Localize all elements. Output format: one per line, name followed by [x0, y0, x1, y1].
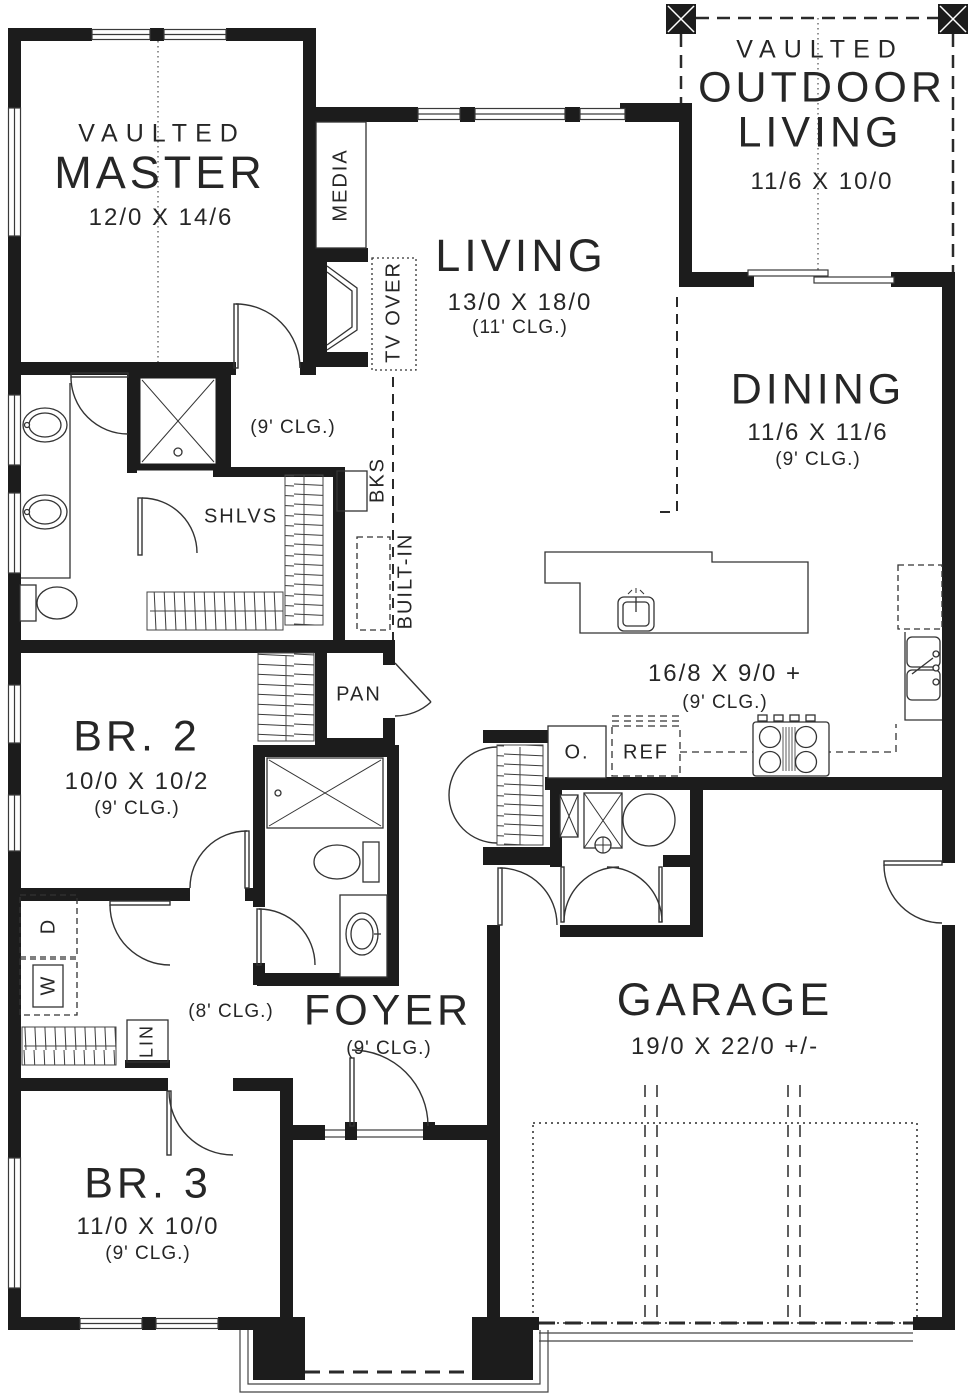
post-x-marks — [668, 6, 966, 32]
bed-hall-clg: (8' CLG.) — [188, 1001, 273, 1023]
tv-over-label: TV OVER — [383, 261, 406, 363]
br3-clg: (9' CLG.) — [105, 1243, 190, 1265]
toilet-tank — [20, 585, 36, 621]
built-in-box — [357, 537, 390, 630]
bks-label: BKS — [367, 457, 390, 503]
bath2-door — [257, 909, 261, 965]
kitchen-clg: (9' CLG.) — [682, 692, 767, 714]
cooktop — [753, 715, 829, 776]
br2-door — [245, 831, 249, 888]
br2-dims: 10/0 X 10/2 — [65, 768, 210, 796]
floor-plan: VAULTED MASTER 12/0 X 14/6 MEDIA TV OVER… — [0, 0, 975, 1395]
mud-double-door-left — [561, 867, 564, 922]
corner-cabinet — [898, 565, 942, 629]
master-hall-clg: (9' CLG.) — [250, 417, 335, 439]
master-bath-fixtures — [20, 375, 219, 621]
garage-hall-door — [498, 868, 502, 925]
toilet-bowl — [314, 845, 360, 879]
wic-door — [138, 498, 142, 555]
dining-dims: 11/6 X 11/6 — [747, 419, 888, 447]
oven-label: O. — [564, 742, 589, 765]
furnace — [623, 794, 675, 846]
linen-label: LIN — [137, 1024, 158, 1058]
br2-clg: (9' CLG.) — [94, 798, 179, 820]
island — [545, 552, 808, 633]
toilet-bowl — [37, 587, 77, 619]
br3-dims: 11/0 X 10/0 — [77, 1213, 220, 1241]
garage-dims: 19/0 X 22/0 +/- — [631, 1033, 819, 1061]
master-door — [234, 304, 238, 368]
br3-name: BR. 3 — [84, 1160, 212, 1209]
br2-name: BR. 2 — [73, 713, 201, 762]
slab-outlines — [240, 1130, 913, 1392]
outdoor-name2: LIVING — [738, 109, 903, 158]
kitchen-dims: 16/8 X 9/0 + — [648, 660, 802, 688]
shelves-label: SHLVS — [204, 506, 278, 529]
garage-name: GARAGE — [617, 974, 834, 1026]
entry-door — [350, 1058, 354, 1126]
master-dims: 12/0 X 14/6 — [89, 204, 234, 232]
built-in-label: BUILT-IN — [395, 533, 418, 630]
coat-closet-bifold — [449, 747, 497, 795]
fridge-label: REF — [623, 742, 669, 765]
master-name: MASTER — [54, 147, 266, 199]
pantry-label: PAN — [336, 684, 382, 707]
outdoor-name1: OUTDOOR — [698, 64, 946, 113]
foyer-clg: (9' CLG.) — [346, 1038, 431, 1060]
living-name: LIVING — [435, 230, 607, 282]
living-clg: (11' CLG.) — [472, 317, 568, 339]
dining-clg: (9' CLG.) — [775, 449, 860, 471]
garage-side-door — [884, 861, 942, 865]
dryer-label: D — [38, 918, 61, 934]
washer-label: W — [38, 975, 61, 996]
master-tag: VAULTED — [78, 120, 246, 149]
foyer-name: FOYER — [304, 987, 472, 1036]
living-dims: 13/0 X 18/0 — [448, 289, 593, 317]
bath2-fixtures — [267, 758, 387, 977]
media-label: MEDIA — [330, 148, 353, 221]
outdoor-dims: 11/6 X 10/0 — [751, 168, 894, 196]
outdoor-tag: VAULTED — [736, 36, 904, 65]
pantry-door — [395, 663, 431, 702]
dining-name: DINING — [731, 366, 906, 415]
laundry-door — [110, 901, 170, 905]
toilet-tank — [363, 842, 379, 882]
